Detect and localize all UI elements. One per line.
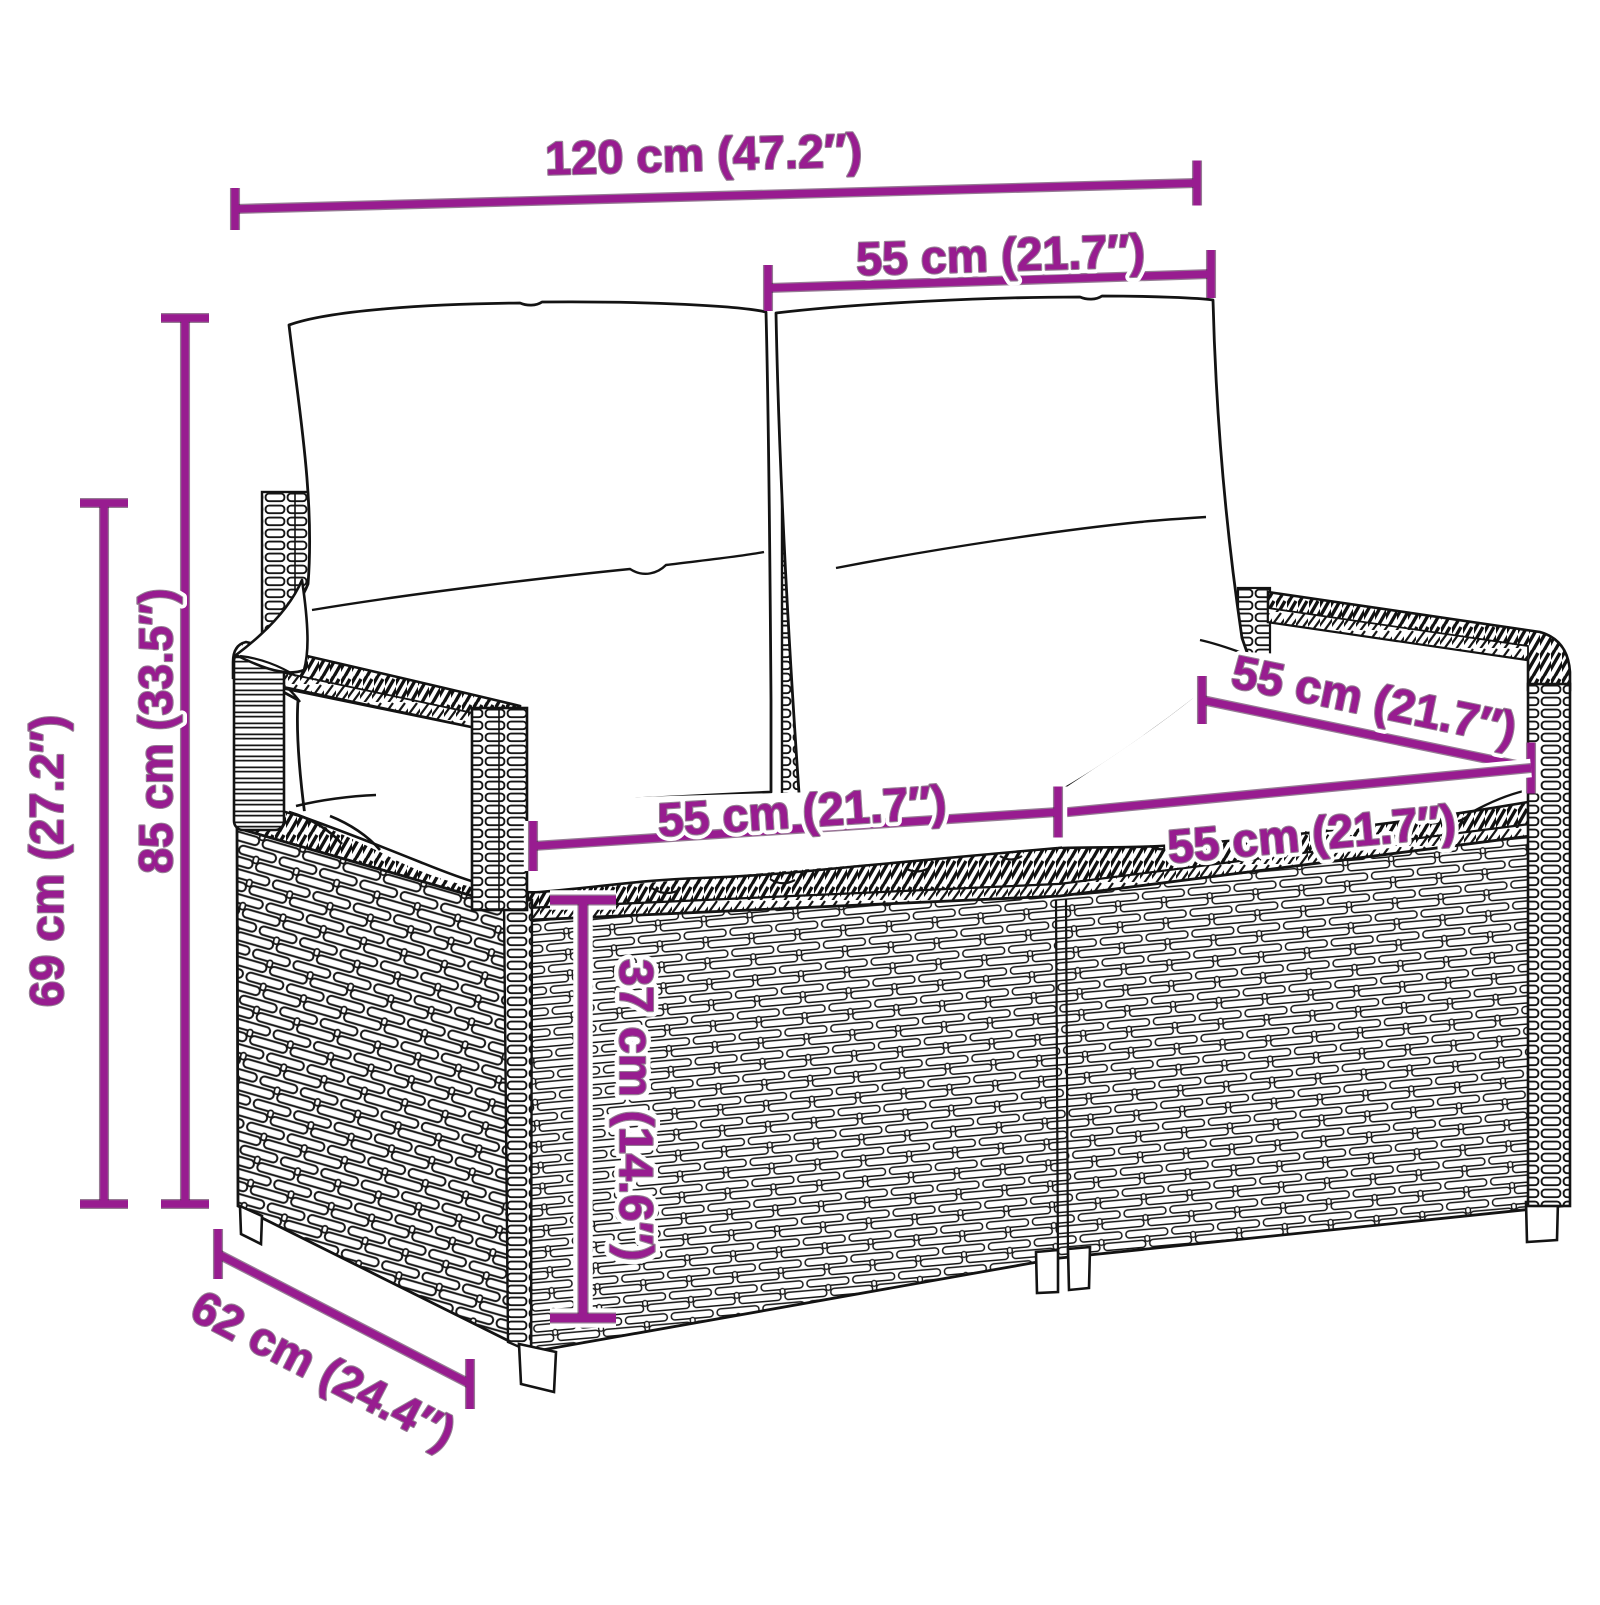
svg-text:69 cm (27.2″): 69 cm (27.2″) xyxy=(20,715,73,1007)
svg-text:85 cm (33.5″): 85 cm (33.5″) xyxy=(129,589,182,874)
svg-text:37 cm (14.6″): 37 cm (14.6″) xyxy=(610,959,663,1261)
svg-text:55 cm (21.7″): 55 cm (21.7″) xyxy=(855,224,1145,286)
svg-text:120 cm (47.2″): 120 cm (47.2″) xyxy=(544,123,862,185)
